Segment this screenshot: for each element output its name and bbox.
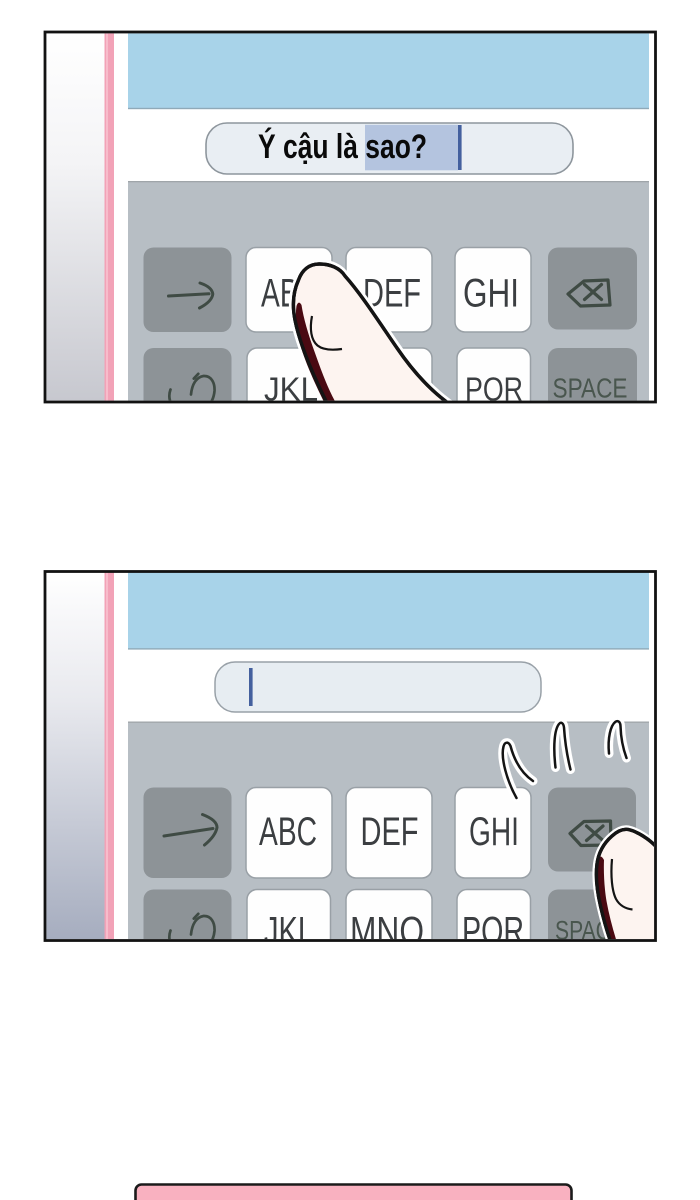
svg-text:MNO: MNO [350, 910, 424, 954]
svg-text:DEF: DEF [361, 810, 419, 854]
svg-text:GHI: GHI [469, 810, 519, 854]
svg-text:GHI: GHI [463, 272, 519, 316]
svg-text:SPACE: SPACE [553, 373, 628, 404]
svg-text:JKL: JKL [264, 910, 314, 954]
svg-text:ABC: ABC [259, 810, 317, 854]
svg-text:PQR: PQR [462, 910, 524, 954]
svg-text:Ý cậu là sao?: Ý cậu là sao? [258, 128, 427, 166]
